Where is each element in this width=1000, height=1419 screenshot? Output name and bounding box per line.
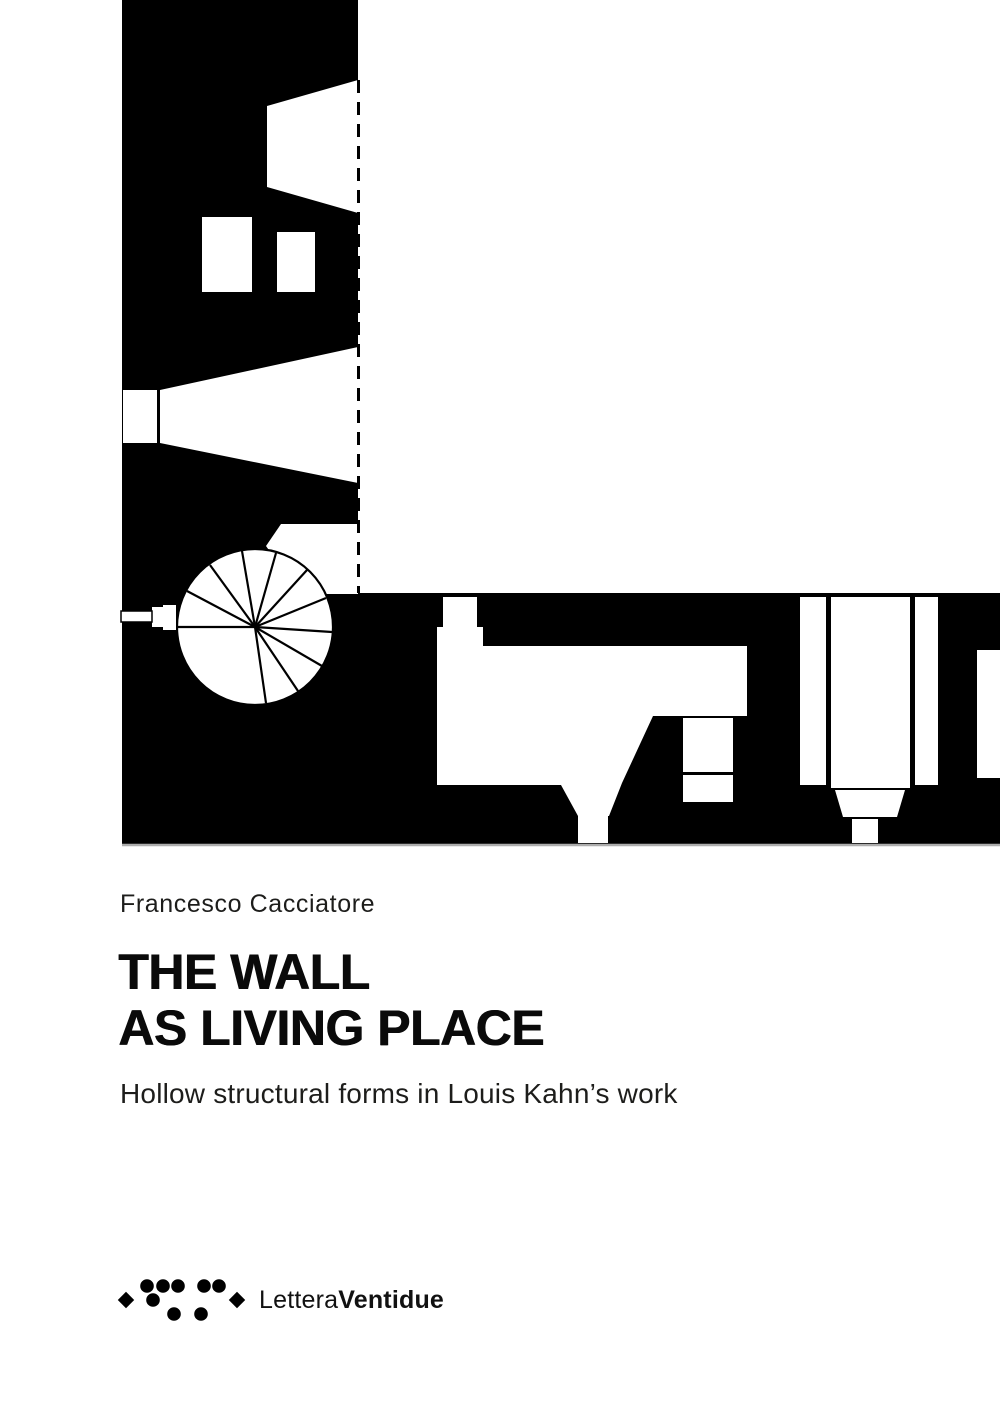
book-title: THE WALL AS LIVING PLACE [118, 944, 544, 1056]
author-name: Francesco Cacciatore [120, 891, 375, 919]
subtitle: Hollow structural forms in Louis Kahn’s … [120, 1079, 678, 1110]
stair-entry-step-outer [163, 605, 176, 630]
publisher-name: LetteraVentidue [259, 1286, 444, 1315]
edge-notch-right [977, 650, 1000, 778]
publisher-name-regular: Lettera [259, 1286, 338, 1314]
shaft-funnel-neck [852, 819, 878, 843]
title-line-1: THE WALL [118, 944, 544, 1000]
light-shaft-box [123, 390, 157, 443]
shaft-panel-right [915, 597, 938, 785]
pier-upper [683, 718, 733, 772]
stair-entry-passage [121, 611, 152, 622]
shaft-funnel [835, 790, 905, 817]
title-line-2: AS LIVING PLACE [118, 1000, 544, 1056]
publisher-logo: LetteraVentidue [112, 1276, 444, 1322]
plan-vertical-wall [122, 0, 358, 595]
niche-rect-left [202, 217, 252, 292]
shaft-panel-middle [831, 597, 910, 788]
cover-illustration [0, 0, 1000, 850]
book-cover: Francesco Cacciatore THE WALL AS LIVING … [0, 0, 1000, 1419]
niche-rect-right [277, 232, 315, 292]
pier-lower [683, 775, 733, 802]
stair-entry-step-inner [152, 607, 164, 627]
shaft-panel-left [800, 597, 826, 785]
publisher-name-bold: Ventidue [338, 1286, 444, 1314]
publisher-dots-icon [112, 1276, 252, 1322]
